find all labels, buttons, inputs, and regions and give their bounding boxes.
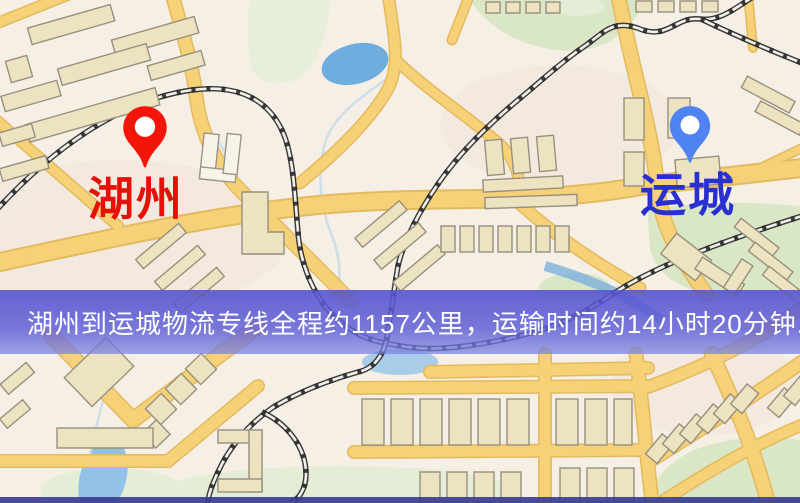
bottom-edge-strip (0, 497, 800, 503)
route-info-text: 湖州到运城物流专线全程约1157公里，运输时间约14小时20分钟. (0, 304, 800, 341)
map-container: 湖州 运城 湖州到运城物流专线全程约1157公里，运输时间约14小时20分钟. (0, 0, 800, 503)
map-image (0, 0, 800, 503)
origin-label: 湖州 (88, 176, 184, 222)
route-info-banner: 湖州到运城物流专线全程约1157公里，运输时间约14小时20分钟. (0, 290, 800, 354)
destination-label: 运城 (640, 172, 736, 218)
